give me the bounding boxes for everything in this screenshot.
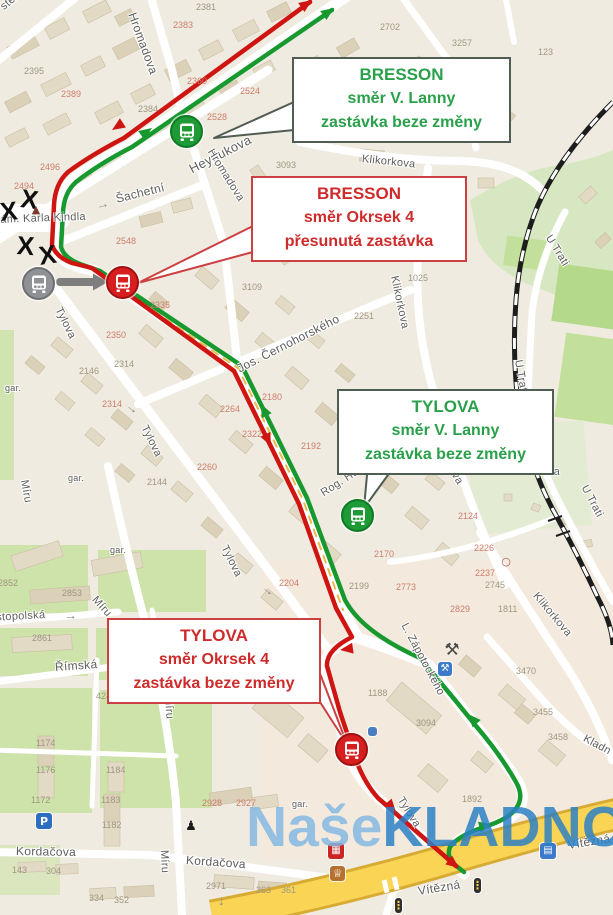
- callout-title: BRESSON: [255, 182, 463, 206]
- callout-title: BRESSON: [296, 63, 507, 87]
- callout-direction: směr Okrsek 4: [111, 648, 317, 672]
- callout-title: TYLOVA: [341, 395, 550, 419]
- callout-direction: směr V. Lanny: [341, 419, 550, 443]
- callout-tylova-v-lanny: TYLOVA směr V. Lanny zastávka beze změny: [337, 389, 554, 475]
- callout-status: zastávka beze změny: [341, 443, 550, 467]
- callout-status: zastávka beze změny: [296, 111, 507, 135]
- callout-title: TYLOVA: [111, 624, 317, 648]
- callout-direction: směr V. Lanny: [296, 87, 507, 111]
- callout-status: zastávka beze změny: [111, 672, 317, 696]
- callout-bresson-v-lanny: BRESSON směr V. Lanny zastávka beze změn…: [292, 57, 511, 143]
- callout-tylova-okrsek4: TYLOVA směr Okrsek 4 zastávka beze změny: [107, 618, 321, 704]
- callout-bresson-okrsek4: BRESSON směr Okrsek 4 přesunutá zastávka: [251, 176, 467, 262]
- callout-status: přesunutá zastávka: [255, 230, 463, 254]
- detour-map: sterovaHeydukovaHromadovaHromadovaŠachet…: [0, 0, 613, 915]
- callout-direction: směr Okrsek 4: [255, 206, 463, 230]
